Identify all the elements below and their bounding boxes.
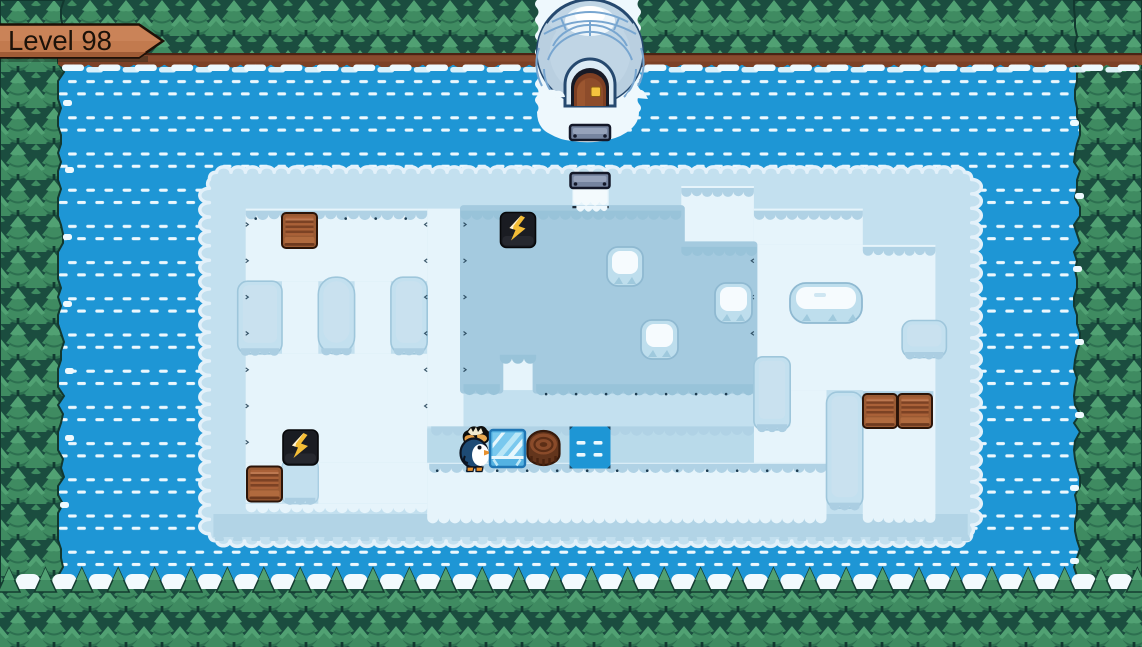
svg-text:Level 98: Level 98: [8, 25, 112, 56]
